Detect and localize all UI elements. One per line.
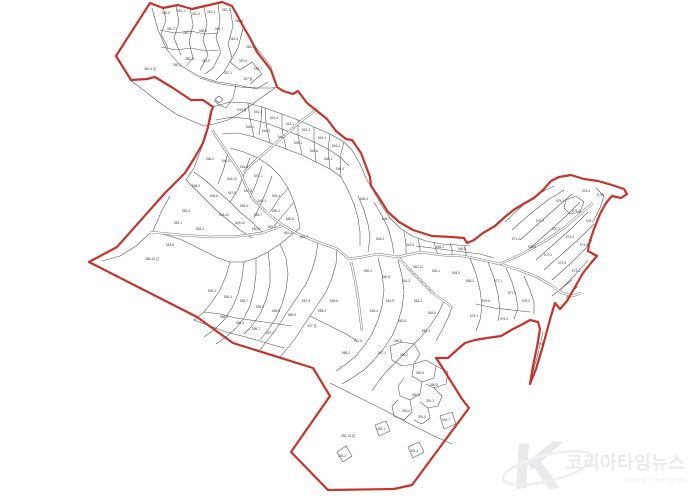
map-page: 코리아타임뉴스 Korea Time News 360-5361-1361-33… xyxy=(0,0,700,500)
parcel-line xyxy=(205,4,221,74)
parcel-label: 557-2 xyxy=(266,331,274,335)
parcel-label: 362-4 xyxy=(235,19,243,23)
parcel-label: 548-6 xyxy=(210,194,218,198)
parcel-label: 545-4 xyxy=(360,197,368,201)
parcel-line xyxy=(161,47,219,51)
parcel-label: 562-4 xyxy=(370,309,378,313)
parcel-label: 391-5 xyxy=(418,415,426,419)
parcel-label: 560-8 xyxy=(382,275,390,279)
parcel-label: 564-1 xyxy=(432,269,440,273)
parcel-label: 554-4 xyxy=(224,295,232,299)
parcel-line xyxy=(420,388,442,408)
parcel-label: 361-1 xyxy=(177,9,185,13)
parcel-line xyxy=(340,142,344,177)
parcel-label: 360-5 xyxy=(162,11,170,15)
parcel-label: 361-3 xyxy=(192,12,200,16)
parcel-label: 570-7 xyxy=(552,227,560,231)
parcel-label: 550-2 xyxy=(272,209,280,213)
parcel-label: 558-2 xyxy=(318,309,326,313)
parcel-line xyxy=(216,8,233,80)
parcel-label: 380-1 xyxy=(173,63,181,67)
parcel-label: 567-5 xyxy=(354,339,362,343)
parcel-line xyxy=(250,166,262,198)
parcel-label: 541-4 xyxy=(270,116,278,120)
parcel-label: 546-5 xyxy=(222,159,230,163)
parcel-label: 546-12 xyxy=(227,177,237,181)
parcel-line xyxy=(204,88,275,126)
parcel-label: 550-9 xyxy=(252,227,260,231)
parcel-line xyxy=(158,228,300,262)
parcel-label: 551-4 xyxy=(284,231,292,235)
parcel-line xyxy=(274,202,294,226)
parcel-label: 357 답 xyxy=(243,76,252,81)
parcel-label: 544-7 xyxy=(278,135,286,139)
parcel-label: 574-6 xyxy=(580,243,588,247)
parcel-label: 산 39 xyxy=(596,192,604,197)
parcel-label: 551-1 xyxy=(268,225,276,229)
parcel-label: 361-7 xyxy=(215,27,223,31)
cadastral-map: 코리아타임뉴스 Korea Time News 360-5361-1361-33… xyxy=(0,0,700,500)
parcel-label: 393-2 xyxy=(338,454,346,458)
parcel-label: 551-7 xyxy=(300,235,308,239)
parcel-label: 357-6 xyxy=(239,59,247,63)
parcel-label: 555-6 xyxy=(272,309,280,313)
parcel-label: 392-4 xyxy=(410,449,418,453)
parcel-label: 546-1 xyxy=(324,157,332,161)
parcel-label: 362-6 xyxy=(230,37,238,41)
parcel-label: 360-2 xyxy=(167,27,175,31)
parcel-label: 565-2 xyxy=(466,279,474,283)
parcel-line xyxy=(450,243,452,256)
parcel-line xyxy=(280,249,337,357)
parcel-line xyxy=(488,262,500,321)
parcel-label: 557-8 xyxy=(302,299,310,303)
parcel-label: 562-8 xyxy=(398,319,406,323)
parcel-label: 560-12 xyxy=(413,265,423,269)
parcel-label: 390-8 xyxy=(430,383,438,387)
parcel-line xyxy=(342,260,404,384)
parcel-label: 575-4 xyxy=(572,209,580,213)
parcel-label: 550-6 xyxy=(286,217,294,221)
parcel-line xyxy=(476,304,530,312)
parcel-label: 578-6 xyxy=(482,299,490,303)
parcel-label: 546-4 xyxy=(336,167,344,171)
parcel-label: 357-1 xyxy=(224,71,232,75)
parcel-label: 547-3 xyxy=(244,189,252,193)
parcel-label: 563-2 xyxy=(414,299,422,303)
parcel-label: 544-3 xyxy=(376,237,384,241)
parcel-label: 392-1 xyxy=(377,427,385,431)
parcel-label: 543-1 xyxy=(318,136,326,140)
parcel-label: 390-2 xyxy=(400,353,408,357)
parcel-line xyxy=(214,85,236,108)
parcel-label: 553-8 xyxy=(166,243,174,247)
parcel-line xyxy=(328,134,330,169)
parcel-label: 390-13 답 xyxy=(341,433,355,438)
parcel-line xyxy=(470,258,482,331)
parcel-label: 573-1 xyxy=(572,269,580,273)
parcel-line xyxy=(436,307,452,341)
parcel-label-layer: 360-5361-1361-3361-4362-1362-4360-2360-7… xyxy=(144,8,604,458)
parcel-label: 556-4 xyxy=(236,321,244,325)
parcel-line xyxy=(194,172,262,232)
parcel-label: 570-3 xyxy=(536,219,544,223)
parcel-label: 553-2 xyxy=(196,227,204,231)
parcel-label: 556-7 xyxy=(252,327,260,331)
parcel-line xyxy=(314,127,316,162)
parcel-label: 568-2 xyxy=(342,351,350,355)
parcel-label: 546-2 xyxy=(206,157,214,161)
parcel-label: 577-1 xyxy=(494,279,502,283)
parcel-label: 575-1 xyxy=(556,199,564,203)
parcel-label: 571-2 xyxy=(512,237,520,241)
parcel-label: 548-12 xyxy=(219,213,229,217)
parcel-label: 392-7 xyxy=(442,418,450,422)
parcel-label: 552-1 xyxy=(174,221,182,225)
parcel-label: 546-7 xyxy=(382,217,390,221)
parcel-label: 548-9 xyxy=(240,204,248,208)
parcel-label: 390-9 xyxy=(412,393,420,397)
road-centerline xyxy=(212,130,240,172)
parcel-label: 572-5 xyxy=(558,261,566,265)
parcel-label: 산 40 xyxy=(537,341,545,346)
road-layer xyxy=(150,108,593,331)
parcel-label: 577-4 xyxy=(508,291,516,295)
parcel-label: 549-4 xyxy=(272,194,280,198)
parcel-label: 549-7 xyxy=(254,213,262,217)
parcel-label: 546-9 xyxy=(240,165,248,169)
watermark: 코리아타임뉴스 Korea Time News xyxy=(500,441,688,492)
parcel-label: 561-3 xyxy=(402,279,410,283)
parcel-label: 567-1 xyxy=(378,351,386,355)
parcel-label: 545-8 xyxy=(458,247,466,251)
parcel-label: 564-5 xyxy=(452,271,460,275)
parcel-label: 545-1 xyxy=(294,141,302,145)
parcel-label: 556-1 xyxy=(220,315,228,319)
parcel-label: 541-1 xyxy=(254,110,262,114)
parcel-layer xyxy=(102,4,604,462)
parcel-label: 362-1 xyxy=(222,8,230,12)
parcel-label: 544-6 xyxy=(406,243,414,247)
parcel-line xyxy=(282,114,286,149)
parcel-label: 554-1 xyxy=(208,289,216,293)
parcel-line xyxy=(310,316,356,340)
parcel-label: 545-2 xyxy=(436,245,444,249)
parcel-line xyxy=(230,148,300,228)
parcel-label: 544-4 xyxy=(262,129,270,133)
parcel-label: 574-2 xyxy=(566,235,574,239)
parcel-label: 571-6 xyxy=(528,245,536,249)
parcel-line xyxy=(374,202,394,254)
parcel-label: 360-7 xyxy=(183,31,191,35)
parcel-label: 547-1 xyxy=(254,174,262,178)
parcel-label: 352-4 xyxy=(246,45,254,49)
parcel-label: 566-8 xyxy=(394,339,402,343)
parcel-line xyxy=(204,312,292,326)
parcel-line xyxy=(260,244,288,340)
parcel-label: 542-1 xyxy=(286,122,294,126)
parcel-label: 558-6 xyxy=(330,299,338,303)
parcel-label: 360-9 xyxy=(199,29,207,33)
parcel-label: 361-9 xyxy=(202,59,210,63)
parcel-line xyxy=(524,276,534,314)
parcel-label: 548-3 xyxy=(192,184,200,188)
parcel-label: 391-1 xyxy=(426,399,434,403)
parcel-label: 552-4 xyxy=(182,209,190,213)
parcel-line xyxy=(265,108,270,143)
parcel-label: 544-1 xyxy=(246,125,254,129)
parcel-line xyxy=(152,196,170,233)
parcel-label: 566-3 xyxy=(422,329,430,333)
parcel-line xyxy=(341,177,360,246)
parcel-label: 576-6 xyxy=(582,189,590,193)
parcel-label: 540 답 xyxy=(237,107,246,112)
road-centerline xyxy=(351,262,362,331)
parcel-label: 560-2 xyxy=(364,269,372,273)
parcel-label: 542-3 xyxy=(302,128,310,132)
parcel-label: 572-1 xyxy=(544,253,552,257)
parcel-label: 390-4 임 xyxy=(144,66,156,71)
parcel-line xyxy=(244,252,270,334)
parcel-label: 390-5 xyxy=(416,371,424,375)
parcel-label: 549-10 xyxy=(235,221,245,225)
parcel-label: 386-14 임 xyxy=(145,256,159,261)
parcel-line xyxy=(130,80,204,126)
watermark-subtitle: Korea Time News xyxy=(625,477,688,484)
parcel-line xyxy=(216,258,256,344)
parcel-label: 352-7 xyxy=(254,67,262,71)
parcel-label: 561-9 xyxy=(386,299,394,303)
parcel-label: 361-4 xyxy=(207,10,215,14)
parcel-label: 555-2 xyxy=(256,305,264,309)
parcel-label: 360-11 xyxy=(185,57,195,61)
parcel-label: 549-1 xyxy=(258,199,266,203)
parcel-label: 579-4 xyxy=(500,317,508,321)
parcel-label: 391-3 xyxy=(402,409,410,413)
parcel-line xyxy=(200,78,277,88)
parcel-label: 547-8 xyxy=(228,191,236,195)
parcel-label: 578-2 xyxy=(522,299,530,303)
parcel-label: 543-4 xyxy=(332,144,340,148)
parcel-line xyxy=(298,120,302,155)
parcel-label: 547 임 xyxy=(307,323,316,328)
parcel-label: 563-6 xyxy=(428,311,436,315)
parcel-label: 555-9 xyxy=(288,313,296,317)
parcel-label: 545-6 xyxy=(310,149,318,153)
road-casing xyxy=(244,108,318,172)
parcel-label: 554-7 xyxy=(240,299,248,303)
parcel-label: 576-2 xyxy=(586,219,594,223)
parcel-label: 579-1 xyxy=(470,314,478,318)
parcel-line xyxy=(352,150,470,246)
watermark-title: 코리아타임뉴스 xyxy=(566,453,685,473)
